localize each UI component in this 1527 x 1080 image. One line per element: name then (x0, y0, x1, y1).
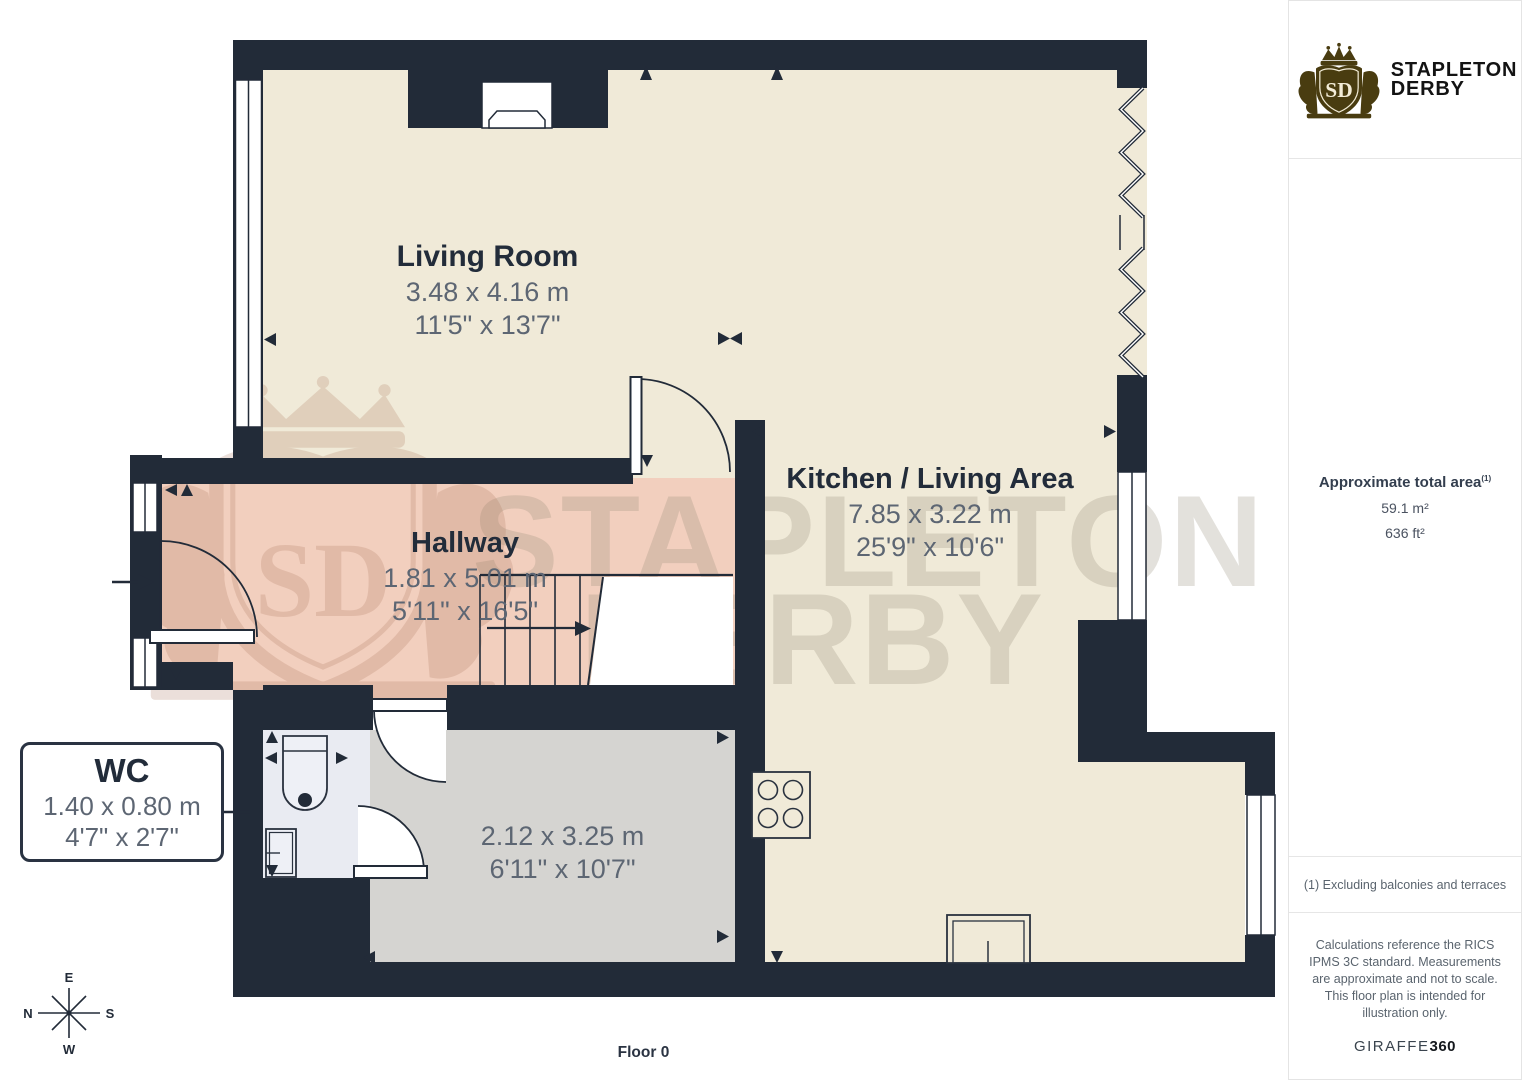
sink-icon (947, 915, 1030, 963)
footnote-section: (1) Excluding balconies and terraces (1289, 856, 1521, 912)
svg-text:SD: SD (255, 522, 391, 640)
disclaimer-text: Calculations reference the RICS IPMS 3C … (1303, 937, 1507, 1022)
fireplace-icon (489, 111, 545, 128)
disclaimer-section: Calculations reference the RICS IPMS 3C … (1289, 912, 1521, 1079)
wc-callout: WC 1.40 x 0.80 m 4'7" x 2'7" (20, 742, 224, 862)
footnote-text: (1) Excluding balconies and terraces (1304, 878, 1506, 892)
fireplace-niche (482, 82, 552, 128)
provider-suffix: 360 (1429, 1038, 1456, 1055)
floor-label: Floor 0 (0, 1044, 1287, 1062)
area-square-meters: 59.1 m² (1381, 500, 1428, 516)
brand-name-line2: DERBY (1391, 80, 1517, 99)
toilet-icon (283, 736, 327, 810)
window-kitchen-lower-right (1247, 795, 1275, 935)
window-kitchen-right (1118, 472, 1146, 620)
brand-logo: SD STAPLETON DERBY (1293, 40, 1517, 120)
provider-name: GIRAFFE (1354, 1038, 1430, 1055)
total-area-section: Approximate total area(1) 59.1 m² 636 ft… (1289, 158, 1521, 856)
room-name: WC (23, 751, 221, 791)
entry-sidelight-top (133, 483, 157, 532)
provider-logo: GIRAFFE360 (1354, 1038, 1456, 1055)
compass-top-label: E (65, 970, 74, 985)
hob-icon (752, 772, 810, 838)
room-dimensions-imperial: 4'7" x 2'7" (23, 822, 221, 853)
floor-plan: STAPLETON DERBY SD (0, 0, 1287, 1080)
compass-right-label: S (106, 1006, 115, 1021)
room-dimensions-metric: 1.40 x 0.80 m (23, 791, 221, 822)
compass-left-label: N (23, 1006, 32, 1021)
brand-logo-section: SD STAPLETON DERBY (1289, 1, 1521, 158)
area-square-feet: 636 ft² (1385, 525, 1425, 541)
entry-sidelight-bottom (133, 638, 157, 687)
floorplan-page: STAPLETON DERBY SD (0, 0, 1527, 1080)
info-sidebar: SD STAPLETON DERBY Approximate total are… (1288, 0, 1522, 1080)
area-title: Approximate total area(1) (1319, 474, 1491, 491)
brand-crest-icon: SD (1293, 40, 1385, 120)
floor-plan-drawing: STAPLETON DERBY SD (0, 0, 1287, 1080)
brand-name: STAPLETON DERBY (1391, 61, 1517, 99)
brand-name-line1: STAPLETON (1391, 61, 1517, 80)
window-living-left (236, 80, 262, 427)
brand-monogram: SD (1325, 77, 1352, 101)
area-footnote-ref: (1) (1481, 474, 1491, 483)
